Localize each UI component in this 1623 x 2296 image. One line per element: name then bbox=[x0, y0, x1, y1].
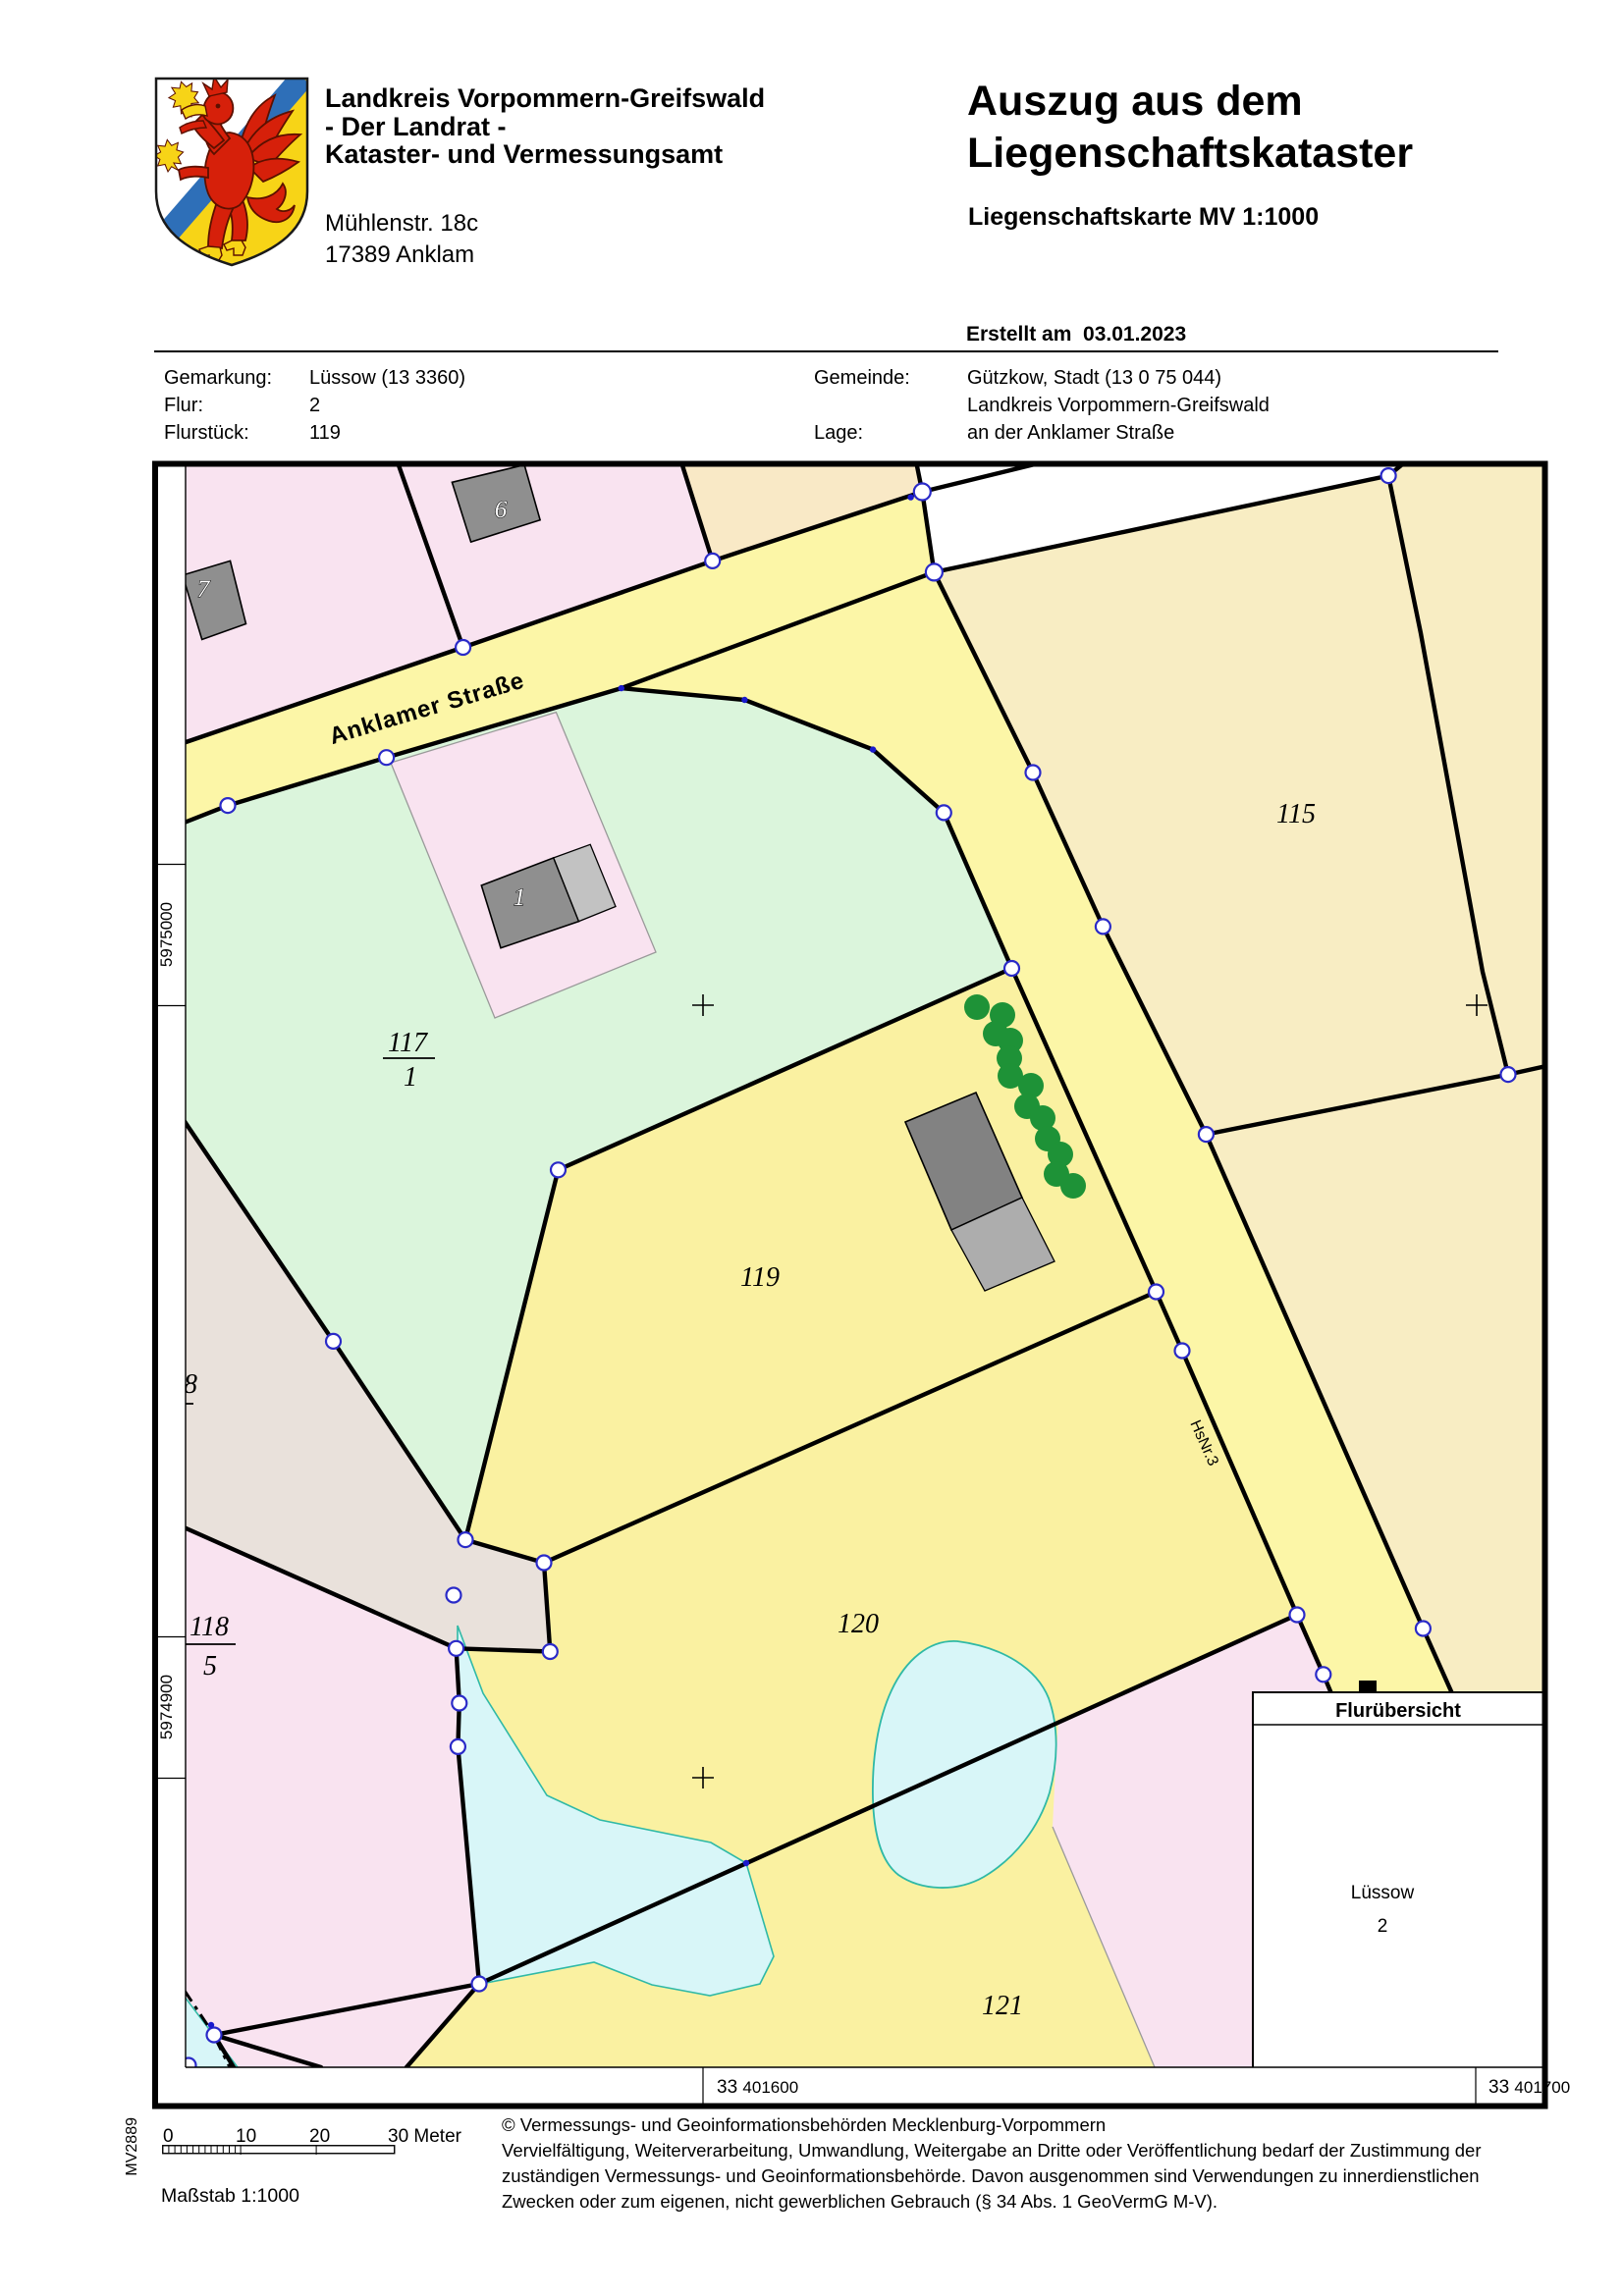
svg-text:120: 120 bbox=[838, 1609, 879, 1639]
svg-text:121: 121 bbox=[982, 1991, 1023, 2021]
svg-text:Flurübersicht: Flurübersicht bbox=[1335, 1700, 1461, 1722]
svg-text:7: 7 bbox=[197, 576, 211, 603]
svg-text:33 401600: 33 401600 bbox=[717, 2077, 798, 2098]
svg-text:6: 6 bbox=[495, 497, 508, 523]
svg-text:118: 118 bbox=[189, 1612, 229, 1642]
svg-text:5975000: 5975000 bbox=[157, 902, 176, 967]
svg-text:5: 5 bbox=[203, 1651, 217, 1682]
svg-text:33 401700: 33 401700 bbox=[1488, 2077, 1570, 2098]
svg-text:115: 115 bbox=[1276, 799, 1316, 829]
svg-text:Lüssow: Lüssow bbox=[1351, 1883, 1415, 1903]
svg-text:117: 117 bbox=[388, 1028, 428, 1058]
svg-text:119: 119 bbox=[740, 1262, 780, 1293]
svg-text:1: 1 bbox=[514, 884, 526, 911]
svg-text:2: 2 bbox=[1378, 1916, 1388, 1937]
svg-text:5974900: 5974900 bbox=[157, 1675, 176, 1739]
svg-text:1: 1 bbox=[404, 1062, 417, 1093]
svg-text:18: 18 bbox=[170, 1369, 197, 1400]
